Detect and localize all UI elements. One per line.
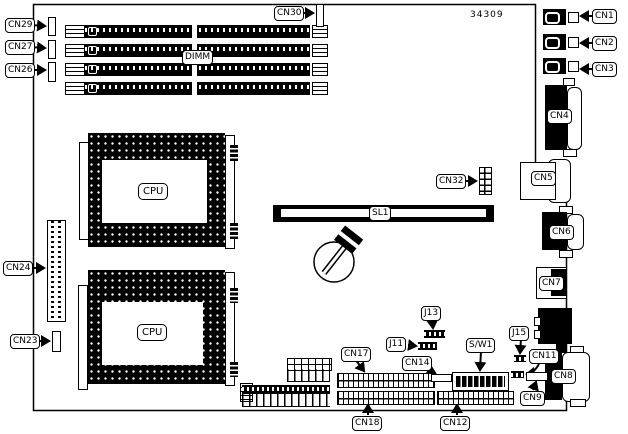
label-cn3: CN3 — [592, 62, 617, 77]
connector-cn26 — [48, 62, 56, 82]
header-j15 — [514, 355, 526, 362]
port-cn2 — [543, 34, 566, 50]
dimm-key-icon — [88, 27, 97, 36]
header-cn18 — [337, 391, 435, 405]
label-cn23: CN23 — [10, 334, 40, 349]
dip-switch-positions — [456, 376, 505, 387]
label-cn32: CN32 — [436, 174, 466, 189]
dimm-endcap — [65, 25, 85, 38]
cn4-screw-bottom — [563, 149, 577, 157]
label-sl1: SL1 — [369, 206, 391, 221]
cpu1-clip-top — [230, 145, 238, 161]
label-cn2: CN2 — [592, 36, 617, 51]
label-cn27: CN27 — [5, 40, 35, 55]
cpu1-clip-bottom — [230, 223, 238, 239]
label-j13: J13 — [421, 306, 441, 321]
header-cn11 — [511, 371, 524, 378]
connector-cn14 — [431, 374, 452, 382]
cn1-tab — [568, 12, 579, 23]
dimm-endcap — [65, 44, 85, 57]
label-cn12: CN12 — [440, 416, 470, 431]
cpu2-retention-bar — [78, 285, 88, 390]
label-cn7: CN7 — [539, 276, 564, 291]
label-cn14: CN14 — [402, 356, 432, 371]
cpu2-clip-top — [230, 288, 238, 303]
part-number: 34309 — [470, 10, 504, 20]
label-j15: J15 — [509, 326, 529, 341]
connector-cn23 — [52, 331, 61, 352]
header-cn17 — [337, 373, 435, 388]
connector-cn9 — [526, 372, 548, 381]
label-cn9: CN9 — [520, 391, 545, 406]
dimm-notch — [192, 25, 197, 38]
cpu2-label: CPU — [137, 324, 167, 341]
label-sw1: S/W1 — [466, 338, 495, 353]
label-cn5: CN5 — [531, 171, 556, 186]
port-cn3 — [543, 58, 566, 74]
label-cn1: CN1 — [592, 9, 617, 24]
dimm-slot-1 — [65, 25, 327, 38]
power-connector-small-teeth — [287, 369, 330, 382]
cn2-tab — [568, 37, 579, 48]
cpu2-clip-bottom — [230, 362, 238, 377]
label-cn6: CN6 — [549, 225, 574, 240]
connector-cn30 — [316, 4, 324, 27]
cn8-screw-bottom — [570, 399, 586, 407]
jack-opening-icon — [545, 12, 560, 24]
dimm-slot-4 — [65, 82, 327, 95]
dimm-endcap — [65, 82, 85, 95]
dimm-bar — [85, 25, 310, 38]
port-cn1 — [543, 9, 566, 25]
stacked-port-tab2 — [534, 330, 541, 339]
dimm-key-icon — [88, 65, 97, 74]
header-j11 — [418, 342, 437, 350]
dimm-endcap — [312, 82, 328, 95]
label-cn24: CN24 — [3, 261, 33, 276]
label-cn18: CN18 — [352, 416, 382, 431]
jack-opening-icon — [545, 61, 560, 73]
label-j11: J11 — [386, 337, 406, 352]
header-cn32 — [479, 167, 492, 195]
label-cn17: CN17 — [341, 347, 371, 362]
label-cn4: CN4 — [547, 109, 572, 124]
connector-cn24 — [47, 220, 66, 322]
dip-switch-sw1 — [452, 372, 509, 391]
label-cn8: CN8 — [551, 369, 576, 384]
dimm-endcap — [312, 63, 328, 76]
label-cn30: CN30 — [274, 6, 304, 21]
dimm-key-icon — [88, 46, 97, 55]
cn6-screw-bottom — [559, 250, 573, 258]
connector-cn29 — [48, 17, 56, 36]
dimm-endcap — [65, 63, 85, 76]
cn3-tab — [568, 61, 579, 72]
power-connector-large-teeth — [242, 394, 330, 407]
dimm-key-icon — [88, 84, 97, 93]
motherboard-diagram: CPU CPU — [0, 0, 628, 434]
stacked-port — [538, 308, 572, 344]
dimm-notch — [192, 82, 197, 95]
dimm-bar — [85, 82, 310, 95]
dimm-endcap — [312, 44, 328, 57]
connector-cn27 — [48, 40, 56, 59]
cpu1-label: CPU — [138, 183, 168, 200]
label-cn29: CN29 — [5, 18, 35, 33]
label-cn11: CN11 — [529, 349, 559, 364]
battery — [314, 226, 363, 282]
stacked-port-tab1 — [534, 317, 541, 326]
power-connector-large — [242, 385, 330, 394]
label-dimm: DIMM — [182, 50, 213, 65]
header-cn12 — [437, 391, 514, 405]
label-cn26: CN26 — [5, 63, 35, 78]
jack-opening-icon — [545, 37, 560, 49]
header-j13 — [424, 330, 445, 338]
